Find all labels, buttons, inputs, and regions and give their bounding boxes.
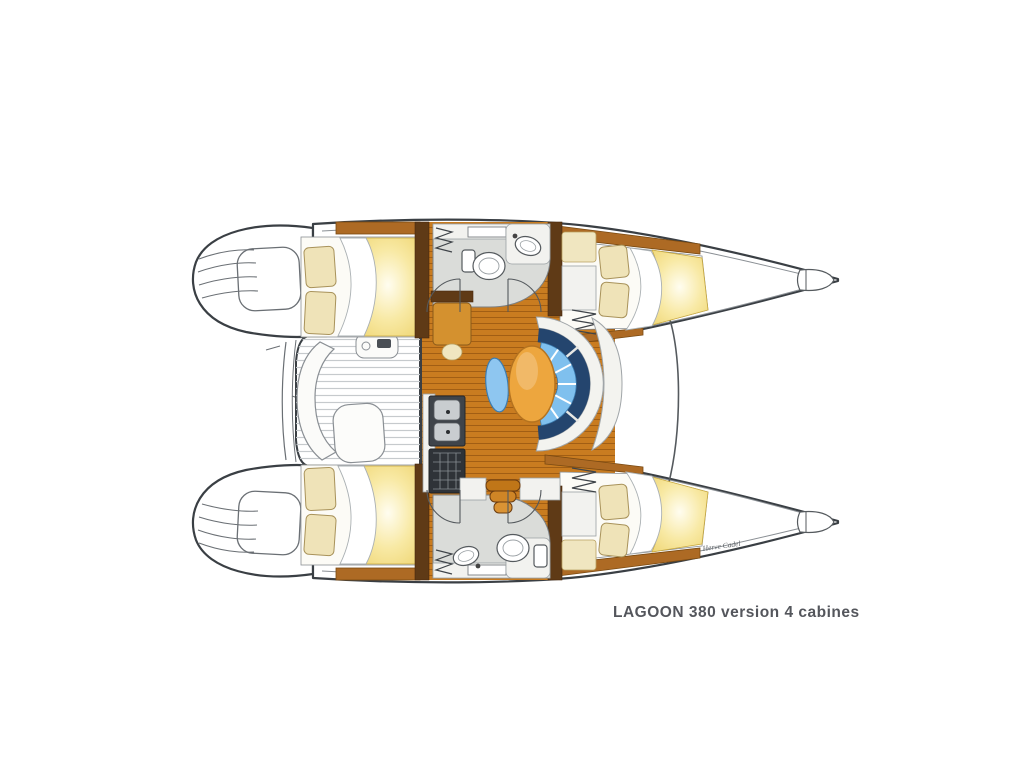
- forward-beam-line: [668, 314, 679, 486]
- plan-caption: LAGOON 380 version 4 cabines: [613, 604, 860, 621]
- toilet-tank: [534, 545, 547, 567]
- port-aft-wardrobe: [415, 222, 429, 338]
- galley-sink-1: [434, 400, 460, 420]
- cabin-head-trim: [336, 568, 420, 580]
- starboard-anchor-locker: [798, 511, 835, 532]
- galley: [423, 394, 465, 493]
- port-aft-cabin: [301, 222, 420, 337]
- pillow: [304, 467, 336, 511]
- faucet: [446, 430, 450, 434]
- toilet-bowl: [473, 253, 505, 280]
- pillow: [599, 282, 630, 318]
- faucet: [476, 564, 481, 569]
- cockpit: [296, 327, 420, 475]
- pillow: [598, 523, 629, 558]
- port-anchor-locker: [798, 269, 835, 290]
- pillow: [304, 514, 337, 556]
- nav-seat-back: [431, 291, 473, 302]
- floor-plan-drawing: LAGOON 380 version 4 cabines Herve Cadel: [0, 0, 1024, 768]
- chart-table: [433, 303, 471, 345]
- step-3: [494, 502, 512, 513]
- cockpit-table: [332, 402, 386, 463]
- faucet: [513, 234, 518, 239]
- shelf-cushion: [562, 540, 596, 570]
- nav-stool: [442, 344, 462, 360]
- pillow: [598, 245, 629, 280]
- pillow: [599, 484, 630, 520]
- pillow: [304, 246, 337, 288]
- vanity-unit: [562, 492, 596, 536]
- step-2: [490, 491, 516, 502]
- helm-console: [356, 334, 398, 358]
- cabinet: [468, 565, 506, 575]
- toilet-bowl: [497, 535, 529, 562]
- pillow: [304, 291, 336, 335]
- starboard-aft-cabin: [301, 465, 420, 580]
- step-1: [486, 480, 520, 491]
- vanity-unit: [562, 266, 596, 310]
- cabinet: [468, 227, 506, 237]
- cabin-head-trim: [336, 222, 420, 234]
- table-highlight: [516, 352, 538, 390]
- shelf-cushion: [562, 232, 596, 262]
- counter-left: [460, 478, 486, 500]
- page: LAGOON 380 version 4 cabines Herve Cadel: [0, 0, 1024, 768]
- faucet: [446, 410, 450, 414]
- starboard-head: [433, 495, 550, 578]
